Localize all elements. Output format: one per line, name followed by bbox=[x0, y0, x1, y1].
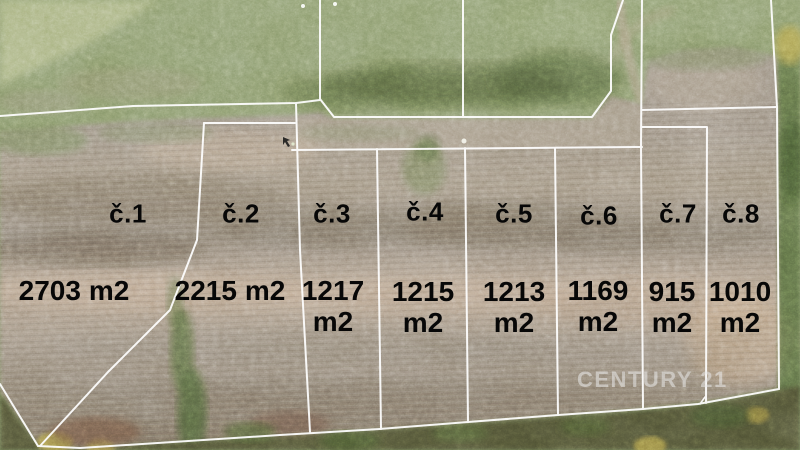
plot-6-area: 1169m2 bbox=[568, 275, 629, 337]
plot-1-number: č.1 bbox=[109, 199, 147, 230]
plot-2-area: 2215m2 bbox=[175, 275, 286, 307]
plot-4-area: 1215m2 bbox=[392, 276, 454, 338]
plot-1-area: 2703m2 bbox=[19, 275, 130, 307]
plot-7-area: 915m2 bbox=[649, 276, 696, 338]
plot-8-area: 1010m2 bbox=[709, 276, 771, 338]
plot-3-area: 1217m2 bbox=[302, 275, 364, 337]
plot-7-number: č.7 bbox=[659, 199, 697, 230]
plot-6-number: č.6 bbox=[580, 201, 618, 232]
plot-5-area: 1213m2 bbox=[483, 276, 545, 338]
century21-watermark: CENTURY 21 bbox=[577, 367, 728, 393]
plot-5-number: č.5 bbox=[495, 199, 533, 230]
plot-2-number: č.2 bbox=[222, 199, 260, 230]
aerial-plot-map: č.1 č.2 č.3 č.4 č.5 č.6 č.7 č.8 2703m2 2… bbox=[0, 0, 800, 450]
plot-8-number: č.8 bbox=[722, 199, 760, 230]
plot-4-number: č.4 bbox=[406, 197, 444, 228]
plot-3-number: č.3 bbox=[313, 199, 351, 230]
